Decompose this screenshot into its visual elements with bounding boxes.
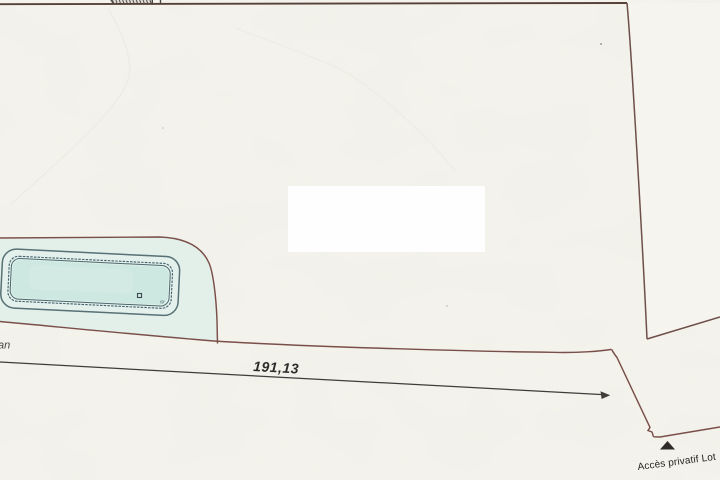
svg-text:an: an (0, 340, 10, 352)
svg-text:191,13: 191,13 (253, 358, 300, 377)
